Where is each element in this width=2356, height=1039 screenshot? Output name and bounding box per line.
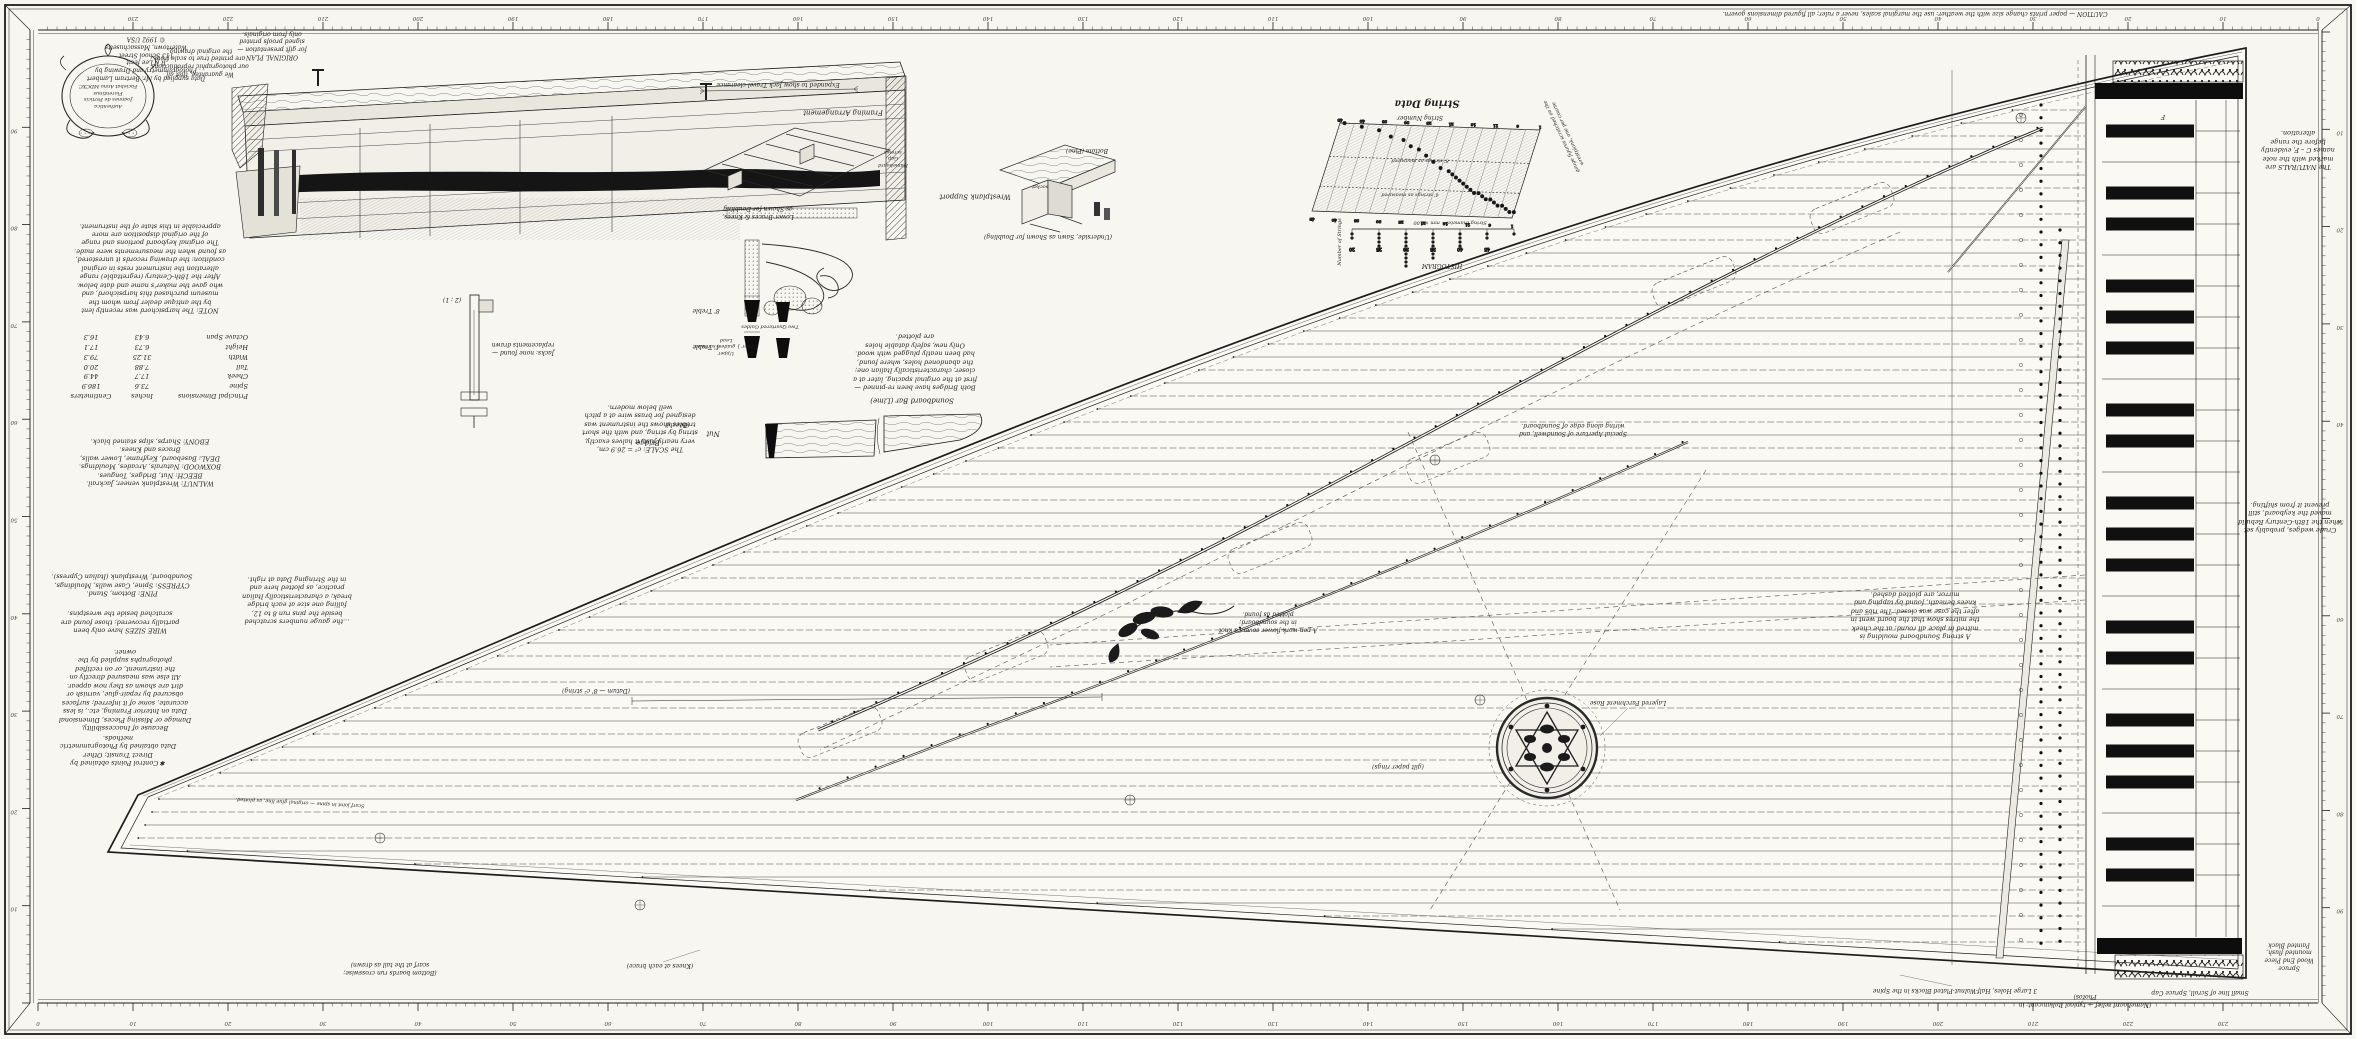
svg-text:11: 11 (1493, 123, 1498, 128)
gauge-note: …the gauge numbers scratched beside the … (207, 575, 387, 626)
dimension-cell: Inches (120, 390, 164, 400)
dimensions-table: Principal DimensionsInchesCentimetersSpi… (48, 332, 248, 400)
sharp-key (2106, 745, 2194, 758)
svg-text:30: 30 (1404, 120, 1410, 125)
wp-caption: (Underside, Sawn as Shown for Doubling) (948, 232, 1148, 240)
scatter-point (1484, 198, 1487, 201)
scatter-point (1360, 125, 1363, 128)
scatter-point (1409, 145, 1412, 148)
dimension-cell: Tail (164, 361, 248, 371)
svg-text:70: 70 (10, 322, 17, 328)
dimension-cell: Height (164, 342, 248, 352)
scatter-point (1417, 148, 1420, 151)
scatter-point (1504, 207, 1507, 210)
wp-socket-label: socket (1015, 183, 1065, 190)
rose-ring-note: (gilt paper rings) (1343, 762, 1453, 770)
svg-text:110: 110 (1267, 15, 1278, 21)
svg-text:40: 40 (414, 1020, 422, 1026)
svg-text:100: 100 (1362, 15, 1373, 21)
svg-text:110: 110 (1077, 1020, 1088, 1026)
section-dim-label: Expanded to show Jack Travel clearance (683, 80, 873, 88)
svg-text:150: 150 (887, 15, 898, 21)
svg-text:170: 170 (697, 15, 708, 21)
svg-text:90: 90 (10, 127, 17, 133)
scatter-point (1389, 135, 1392, 138)
aperture-note: Special Aperture of Soundwell, and wirin… (1488, 421, 1658, 437)
svg-text:120: 120 (1172, 15, 1183, 21)
svg-text:40: 40 (2336, 421, 2344, 427)
sharp-key (2106, 497, 2194, 510)
dimension-cell: 73.6 (120, 381, 164, 391)
sharp-key (2106, 559, 2194, 572)
svg-text:20: 20 (10, 808, 18, 814)
svg-text:50: 50 (10, 517, 17, 523)
dimension-cell: Width (164, 351, 248, 361)
jack-scale-label: (2 : 1) (427, 295, 477, 303)
sharp-key (2106, 838, 2194, 851)
caution-note: CAUTION — paper prints change size with … (1525, 9, 2305, 17)
scatter-point (1492, 201, 1495, 204)
jack-caption: Jacks: none found — replacements drawn (468, 340, 578, 356)
dimension-cell: 20.0 (62, 361, 120, 371)
tail-caption: (Bottom boards run crosswise; scarf at t… (295, 960, 485, 976)
svg-text:60: 60 (2336, 616, 2343, 622)
scatter-point (1462, 182, 1465, 185)
svg-text:80: 80 (2336, 810, 2343, 816)
profile-8ft-label: 8' Treble (671, 306, 741, 314)
dimension-cell: Centimeters (62, 390, 120, 400)
dimension-cell: 17.7 (120, 371, 164, 381)
drawing-sheet: 0010102020303040405050606070708080909010… (0, 0, 2356, 1039)
scatter-point (1402, 139, 1405, 142)
svg-text:120: 120 (1172, 1020, 1183, 1026)
datum-label: (Datum — 8' c² string) (531, 686, 661, 694)
scatter-point (1501, 204, 1504, 207)
key-letter: F (2153, 112, 2173, 120)
sharp-key (2106, 404, 2194, 417)
histogram-xlabel: String Diameter – mm × 100 (1370, 219, 1530, 226)
control-points-note: ✱ Control Points obtained by Direct Tran… (33, 733, 203, 767)
svg-text:180: 180 (602, 15, 613, 21)
svg-text:190: 190 (507, 15, 518, 21)
bridges-note: Both Bridges have been re-pinned — first… (823, 332, 1008, 391)
chart-xlabel: String Number (1360, 113, 1480, 121)
svg-text:170: 170 (1647, 1020, 1658, 1026)
sharp-key (2106, 342, 2194, 355)
svg-text:100: 100 (982, 1020, 993, 1026)
plan-drawing: 0010102020303040405050606070708080909010… (0, 0, 2356, 1039)
svg-text:60: 60 (604, 1020, 611, 1026)
svg-text:45: 45 (1484, 246, 1490, 252)
svg-text:210: 210 (2027, 1020, 2039, 1026)
svg-text:10: 10 (10, 906, 17, 912)
wp-support-label: Wrestplank Support (915, 191, 1035, 200)
dimension-cell: 17.1 (62, 342, 120, 352)
overlay-4ft-label: 4' strings as measured (1340, 191, 1480, 198)
scatter-point (1454, 176, 1457, 179)
svg-text:0: 0 (2316, 15, 2320, 21)
svg-text:140: 140 (982, 15, 993, 21)
svg-text:20: 20 (224, 1020, 232, 1026)
gap-screws-label: Nameboard Gap screws (863, 148, 923, 168)
profile-4ft-label: 4' Treble (671, 342, 741, 350)
dimension-cell: Cheek (164, 371, 248, 381)
svg-text:70: 70 (2336, 713, 2343, 719)
dimension-cell: Spine (164, 381, 248, 391)
svg-text:50: 50 (509, 1020, 516, 1026)
sharp-key (2106, 435, 2194, 448)
svg-text:220: 220 (222, 15, 234, 21)
sharp-key (2106, 187, 2194, 200)
svg-text:80: 80 (794, 1020, 801, 1026)
dimension-cell: Octave Span (164, 332, 248, 342)
svg-text:130: 130 (1267, 1020, 1278, 1026)
woods-note: WALNUT: Wrestplank veneer, Jackrail. BEE… (40, 437, 260, 488)
svg-text:90: 90 (889, 1020, 896, 1026)
scatter-point (1496, 204, 1499, 207)
scatter-point (1508, 210, 1511, 213)
flower-note: A pen-work flower covers a knot in the s… (1193, 610, 1343, 633)
svg-text:1: 1 (1539, 125, 1542, 130)
sharp-key (2106, 218, 2194, 231)
scatter-point (1447, 170, 1450, 173)
scatter-point (1451, 173, 1454, 176)
guarantee-note: We guarantee, that all our photographic … (145, 46, 255, 77)
bottom-caption-scroll: Small line of Scroll, Spruce Cap (2135, 988, 2265, 996)
scatter-point (1458, 179, 1461, 182)
rose-note: Layered Parchment Rose (1568, 698, 1688, 706)
naturals-note: The NATURALS are marked with the note na… (2248, 129, 2348, 171)
dimension-cell: 31.25 (120, 351, 164, 361)
svg-text:200: 200 (412, 15, 424, 21)
histogram-label: HISTOGRAM (1387, 261, 1497, 269)
scatter-point (1439, 167, 1442, 170)
svg-text:130: 130 (1077, 15, 1088, 21)
nut-label: Nut (693, 428, 733, 437)
photogrammetry-note: Because of Inaccessibility, Damage or Mi… (33, 648, 218, 732)
sharp-key (2106, 776, 2194, 789)
overlay-8ft-label: 8' strings as measured (1350, 157, 1490, 164)
svg-text:180: 180 (1742, 1020, 1753, 1026)
wp-bottom-label: Bottom (Pine) (1042, 146, 1132, 154)
svg-text:30: 30 (10, 711, 17, 717)
svg-text:80: 80 (10, 225, 17, 231)
chart-title: String Data (1347, 97, 1507, 110)
svg-text:30: 30 (2336, 324, 2343, 330)
sharp-key (2106, 125, 2194, 138)
svg-text:220: 220 (2122, 1020, 2134, 1026)
sharp-key (2106, 528, 2194, 541)
svg-text:70: 70 (699, 1020, 706, 1026)
svg-text:25: 25 (1426, 121, 1432, 126)
svg-text:21: 21 (1449, 122, 1454, 127)
restoration-note: NOTE: The harpsichord was recently lent … (30, 222, 270, 315)
svg-text:45: 45 (1309, 217, 1315, 222)
dimension-cell: 44.9 (62, 371, 120, 381)
scatter-point (1512, 211, 1515, 214)
guides-label: Two Quartered Guides (715, 323, 825, 330)
svg-text:140: 140 (1362, 1020, 1373, 1026)
svg-text:150: 150 (1457, 1020, 1468, 1026)
scatter-point (1481, 195, 1484, 198)
svg-text:210: 210 (317, 15, 329, 21)
bottom-caption-knees: (Knees at each brace) (590, 961, 730, 969)
dimension-cell: 16.3 (62, 332, 120, 342)
pine-cypress-note: PINE: Bottom, Stand. CYPRESS: Spine, Cas… (32, 572, 212, 597)
svg-text:230: 230 (127, 15, 139, 21)
scatter-point (1378, 129, 1381, 132)
end-piece-note: Spruce Wood End Piece mounted flush, Pai… (2244, 940, 2334, 971)
cartouche-text: Authentica Joannes de Perticis Florentin… (68, 83, 148, 109)
scatter-point (1465, 185, 1468, 188)
svg-text:40: 40 (10, 614, 18, 620)
svg-text:35: 35 (1353, 219, 1359, 224)
sharp-key (2106, 869, 2194, 882)
svg-text:230: 230 (2217, 1020, 2229, 1026)
beech-label: (Beech) (648, 420, 708, 428)
bridge-label: Bridge (618, 437, 678, 446)
svg-text:160: 160 (792, 15, 803, 21)
sharp-key (2106, 311, 2194, 324)
svg-text:160: 160 (1552, 1020, 1563, 1026)
framing-caption: Lower Braces & Knees, as Shown for Doubl… (683, 204, 833, 220)
dimension-cell: 79.3 (62, 351, 120, 361)
svg-text:30: 30 (319, 1020, 326, 1026)
dimension-cell: 6.43 (120, 332, 164, 342)
dimension-cell: 6.73 (120, 342, 164, 352)
svg-text:20: 20 (2336, 227, 2344, 233)
dimension-cell: 186.9 (62, 381, 120, 391)
soundboard-bar-label: Soundboard Bar (Lime) (837, 395, 987, 404)
cross-section-detail (232, 62, 906, 316)
dimension-cell: Principal Dimensions (164, 390, 248, 400)
svg-text:6: 6 (1516, 124, 1519, 129)
moulding-note: A strong Soundboard moulding is mitred i… (1828, 590, 2003, 641)
histogram-ylabel: Number of Strings (1337, 207, 1344, 277)
svg-text:190: 190 (1837, 1020, 1848, 1026)
svg-text:90: 90 (1459, 15, 1466, 21)
sharp-key (2106, 652, 2194, 665)
svg-text:0: 0 (36, 1020, 40, 1026)
svg-text:200: 200 (1932, 1020, 1944, 1026)
framing-label: Framing Arrangement (773, 107, 913, 116)
wedges-note: Crude wedges, probably set when the 18th… (2233, 500, 2348, 534)
dimension-cell: 7.88 (120, 361, 164, 371)
svg-text:90: 90 (2336, 908, 2343, 914)
sharp-key (2106, 280, 2194, 293)
svg-text:60: 60 (10, 419, 17, 425)
svg-text:10: 10 (129, 1020, 136, 1026)
svg-text:45: 45 (1337, 118, 1343, 123)
svg-text:20: 20 (1349, 246, 1355, 252)
svg-text:16: 16 (1470, 123, 1476, 128)
sharp-key (2106, 621, 2194, 634)
scatter-point (1489, 198, 1492, 201)
wire-note: WIRE SIZES have only been partially reco… (35, 609, 205, 634)
sharp-key (2106, 714, 2194, 727)
